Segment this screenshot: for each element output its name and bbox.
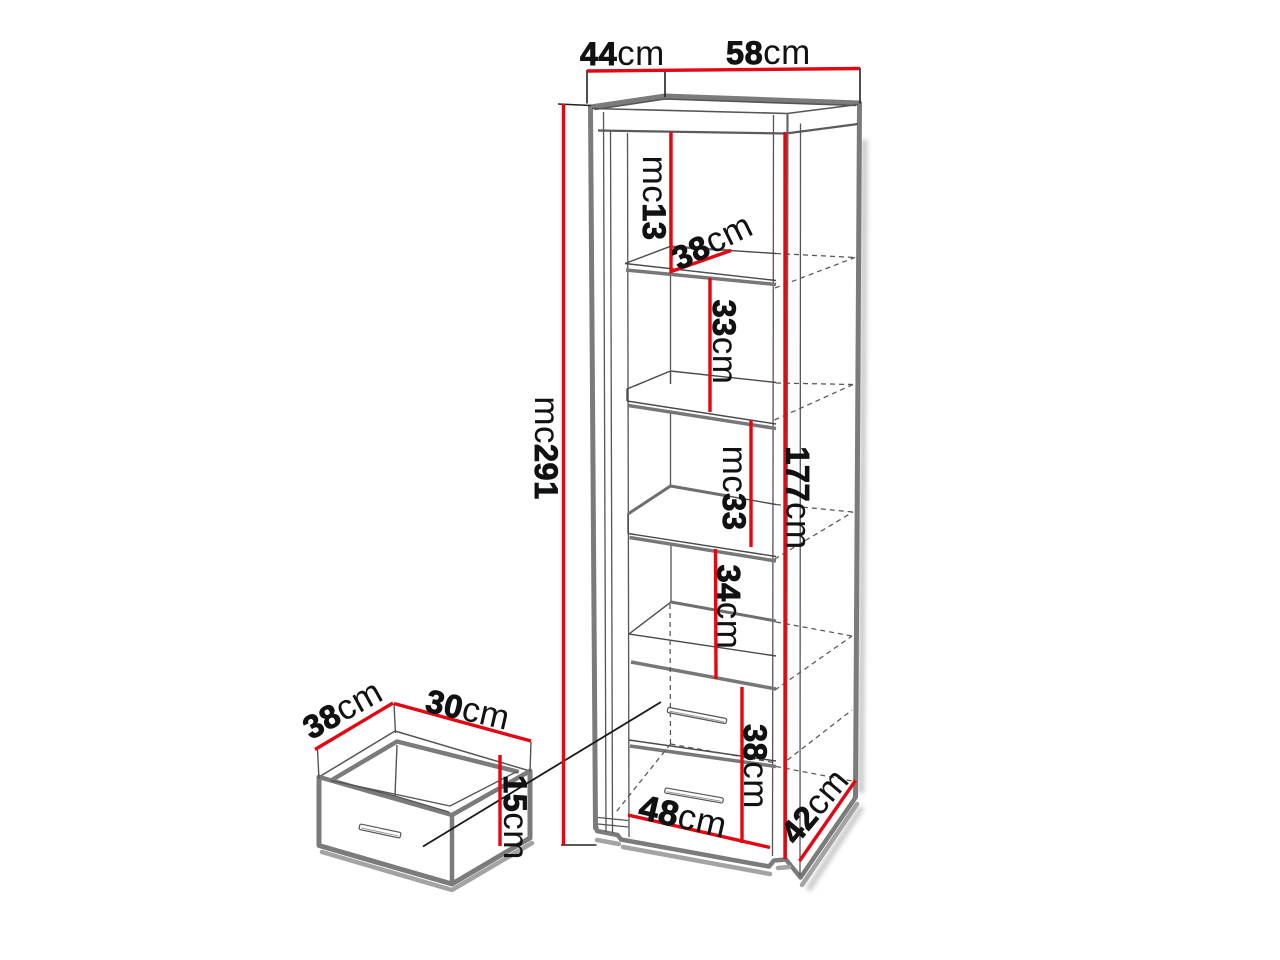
svg-text:mc291: mc291 (527, 396, 566, 499)
svg-text:58cm: 58cm (726, 33, 811, 72)
svg-text:44cm: 44cm (580, 34, 665, 73)
svg-text:33cm: 33cm (705, 300, 744, 385)
svg-text:34cm: 34cm (710, 565, 749, 650)
svg-text:mc13: mc13 (635, 156, 674, 241)
svg-text:15cm: 15cm (496, 775, 535, 860)
svg-text:38cm: 38cm (736, 724, 775, 809)
svg-text:mc33: mc33 (715, 446, 754, 531)
svg-text:177cm: 177cm (779, 446, 818, 549)
